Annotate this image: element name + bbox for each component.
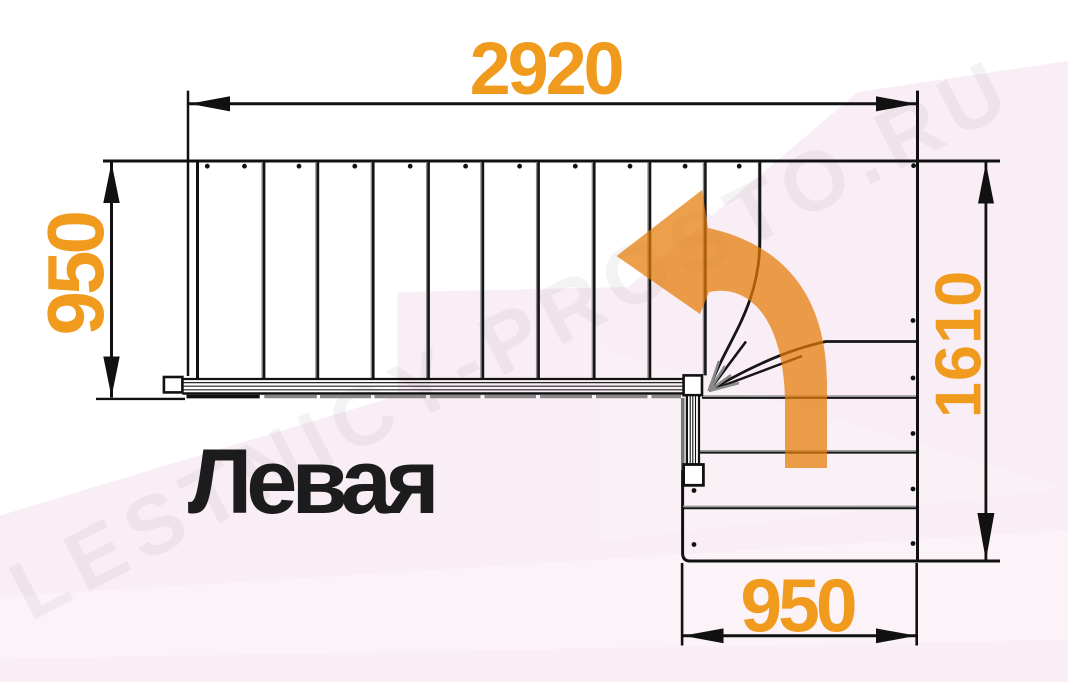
svg-text:Левая: Левая [188, 431, 434, 533]
svg-text:950: 950 [31, 213, 120, 336]
svg-text:950: 950 [740, 563, 854, 647]
svg-text:2920: 2920 [470, 27, 623, 110]
svg-text:1610: 1610 [921, 270, 994, 419]
